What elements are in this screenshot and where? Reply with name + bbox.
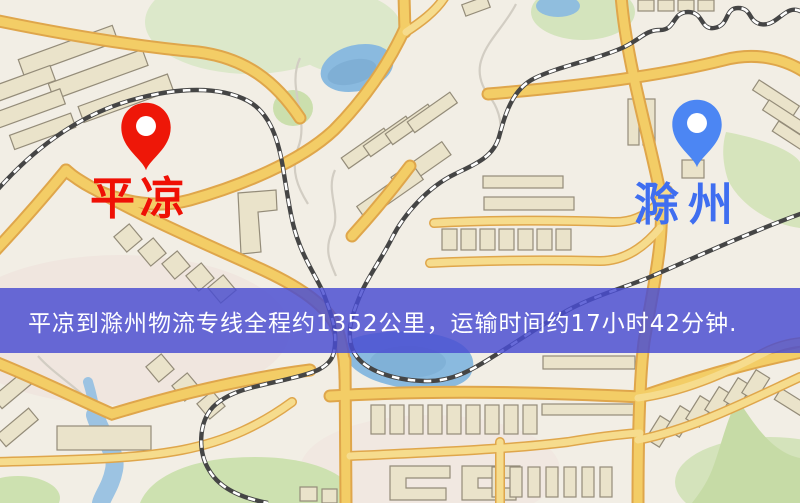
route-info-banner: 平凉到滁州物流专线全程约1352公里，运输时间约17小时42分钟. — [0, 288, 800, 353]
destination-city-label: 滁州 — [630, 182, 746, 227]
route-info-text: 平凉到滁州物流专线全程约1352公里，运输时间约17小时42分钟. — [28, 304, 737, 338]
map-canvas[interactable] — [0, 0, 800, 503]
origin-city-label: 平凉 — [84, 176, 196, 221]
destination-pin-icon[interactable] — [667, 95, 727, 171]
map-screenshot: 平凉 滁州 平凉到滁州物流专线全程约1352公里，运输时间约17小时42分钟. — [0, 0, 800, 503]
origin-pin-icon[interactable] — [116, 98, 176, 174]
